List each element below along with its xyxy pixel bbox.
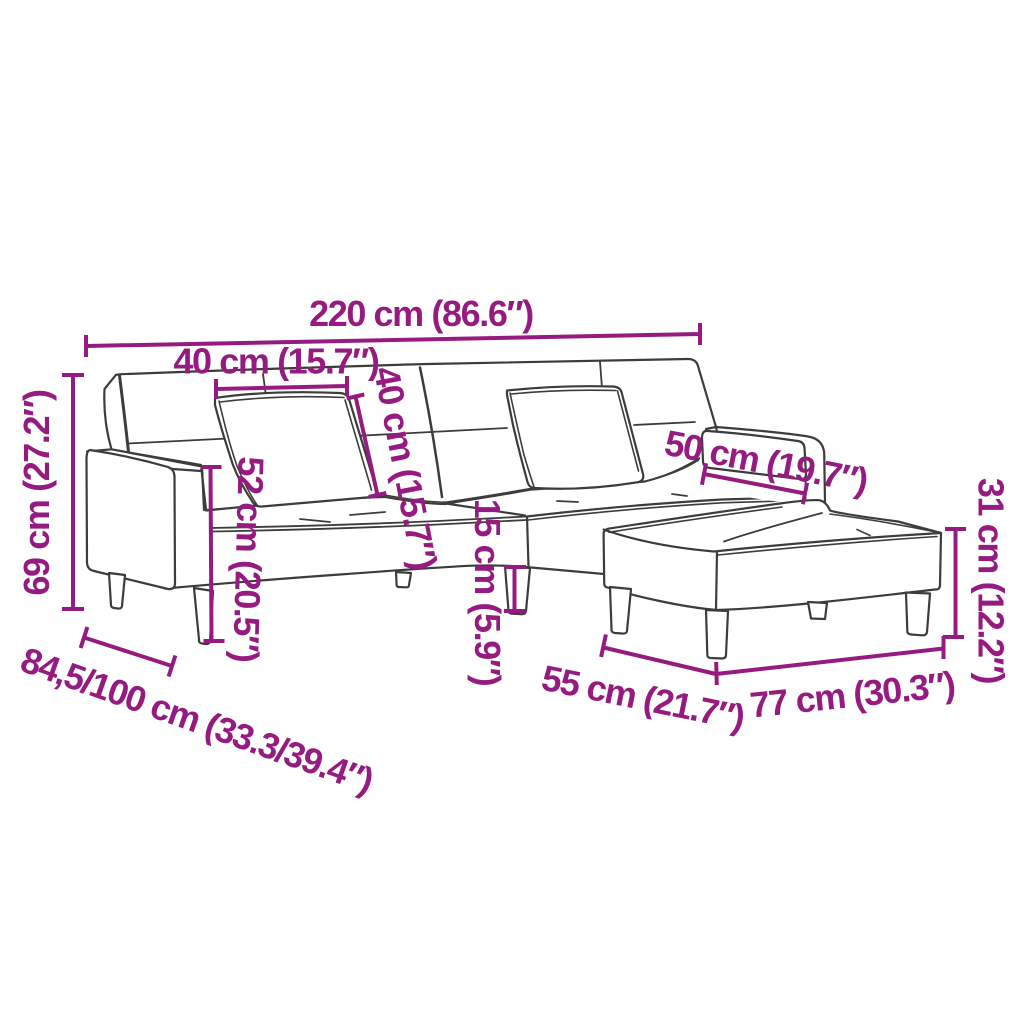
svg-text:220 cm (86.6″): 220 cm (86.6″): [309, 293, 533, 334]
svg-text:15 cm (5.9″): 15 cm (5.9″): [467, 499, 508, 686]
svg-text:52 cm (20.5″): 52 cm (20.5″): [225, 456, 271, 663]
svg-text:69 cm (27.2″): 69 cm (27.2″): [16, 390, 57, 596]
svg-text:31 cm (12.2″): 31 cm (12.2″): [971, 478, 1012, 684]
svg-text:40 cm (15.7″): 40 cm (15.7″): [173, 341, 379, 382]
